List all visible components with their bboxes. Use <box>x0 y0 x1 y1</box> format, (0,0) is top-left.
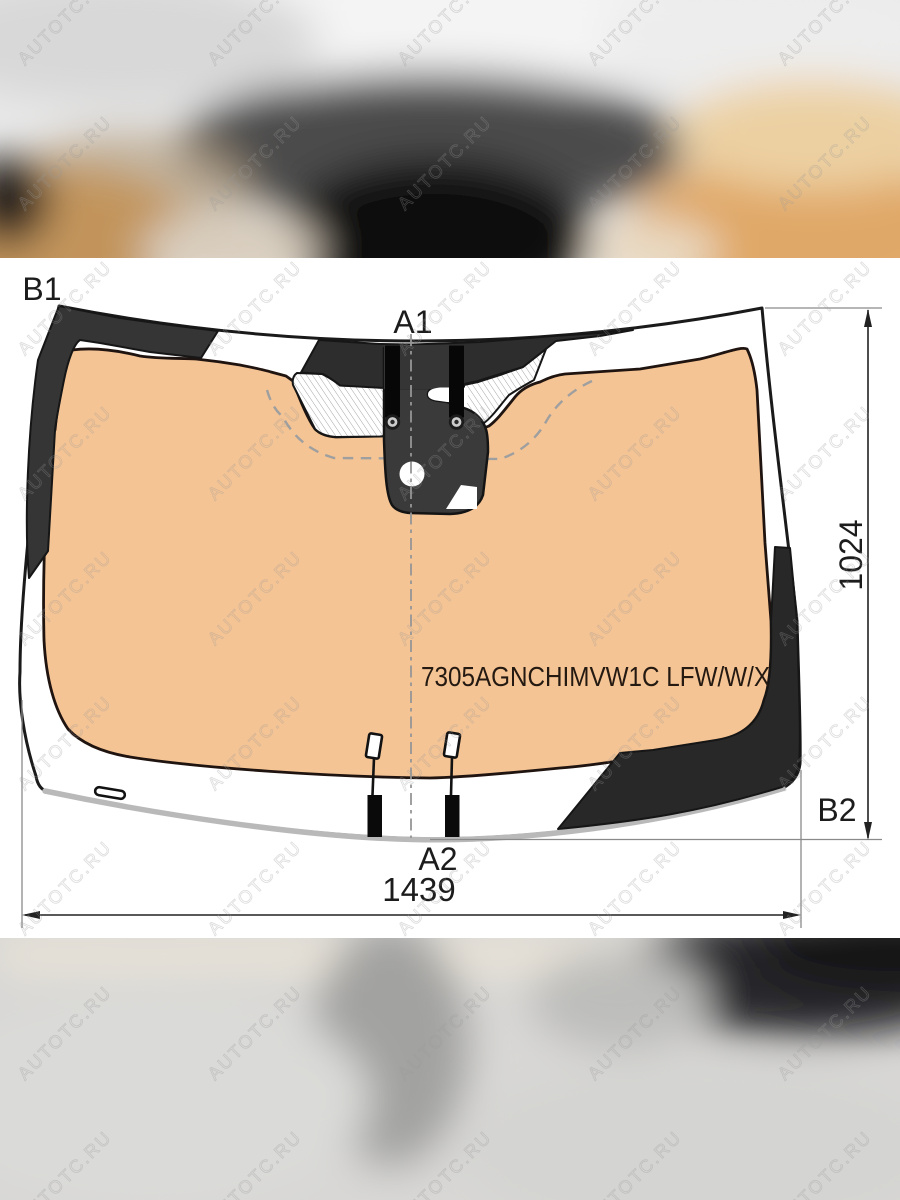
svg-text:B2: B2 <box>817 792 856 828</box>
svg-text:7305AGNCHIMVW1C LFW/W/X: 7305AGNCHIMVW1C LFW/W/X <box>421 661 770 692</box>
